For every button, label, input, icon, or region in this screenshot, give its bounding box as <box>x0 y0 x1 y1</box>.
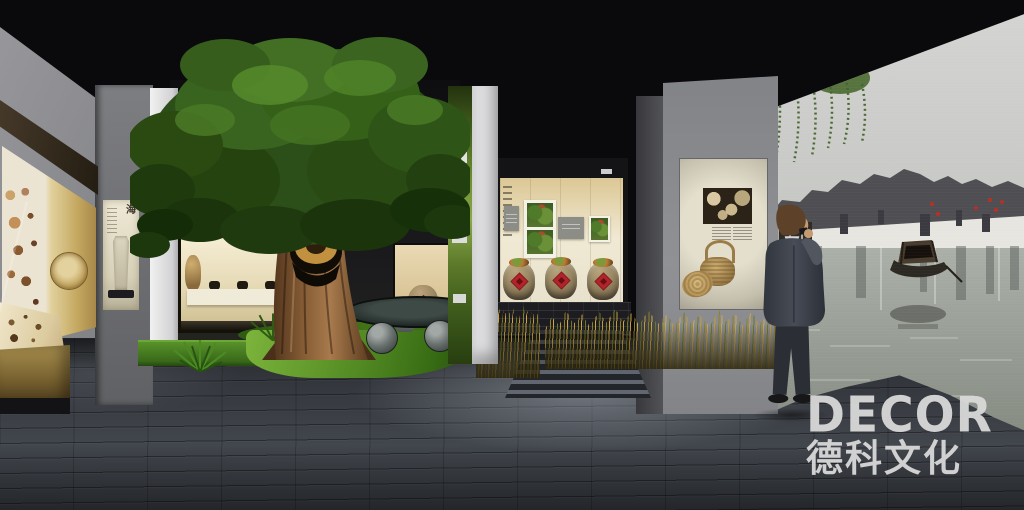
tree-canopy <box>130 37 470 258</box>
gray-placard <box>504 206 519 231</box>
winnowing-basket <box>50 252 88 290</box>
old-tree <box>130 30 470 365</box>
brand-wordmark: DECOR <box>806 393 1024 439</box>
calligraphy-marks <box>107 208 117 234</box>
photo-plants <box>591 218 608 240</box>
vitrine-gold-front <box>0 345 70 403</box>
red-lanterns <box>930 198 1004 216</box>
canal-boat <box>890 240 962 282</box>
red-diamond-label <box>552 271 570 289</box>
vitrine-plinth <box>0 398 70 414</box>
caption-block <box>712 227 731 240</box>
hand <box>804 229 813 238</box>
red-diamond-label <box>594 272 612 290</box>
red-diamond-label <box>510 272 528 290</box>
brand-chinese-name: 德科文化 <box>806 439 1024 480</box>
shoe <box>768 394 788 403</box>
stone-stele <box>113 236 129 290</box>
window-label-tag <box>601 169 612 174</box>
photo-pillar-front <box>472 86 498 364</box>
pickle-jar <box>545 261 577 299</box>
gray-placard <box>558 217 584 239</box>
watermark-logo: DECOR 德科文化 <box>806 394 1024 479</box>
exhibition-hall-rendering: 海 <box>0 0 1024 510</box>
sepia-photograph <box>703 188 752 224</box>
willow-branches <box>770 42 870 162</box>
photo-field <box>527 230 553 254</box>
trousers <box>773 326 811 395</box>
pickle-jar <box>503 262 535 300</box>
pickle-jar <box>587 262 619 300</box>
photo-harvest <box>527 203 553 227</box>
